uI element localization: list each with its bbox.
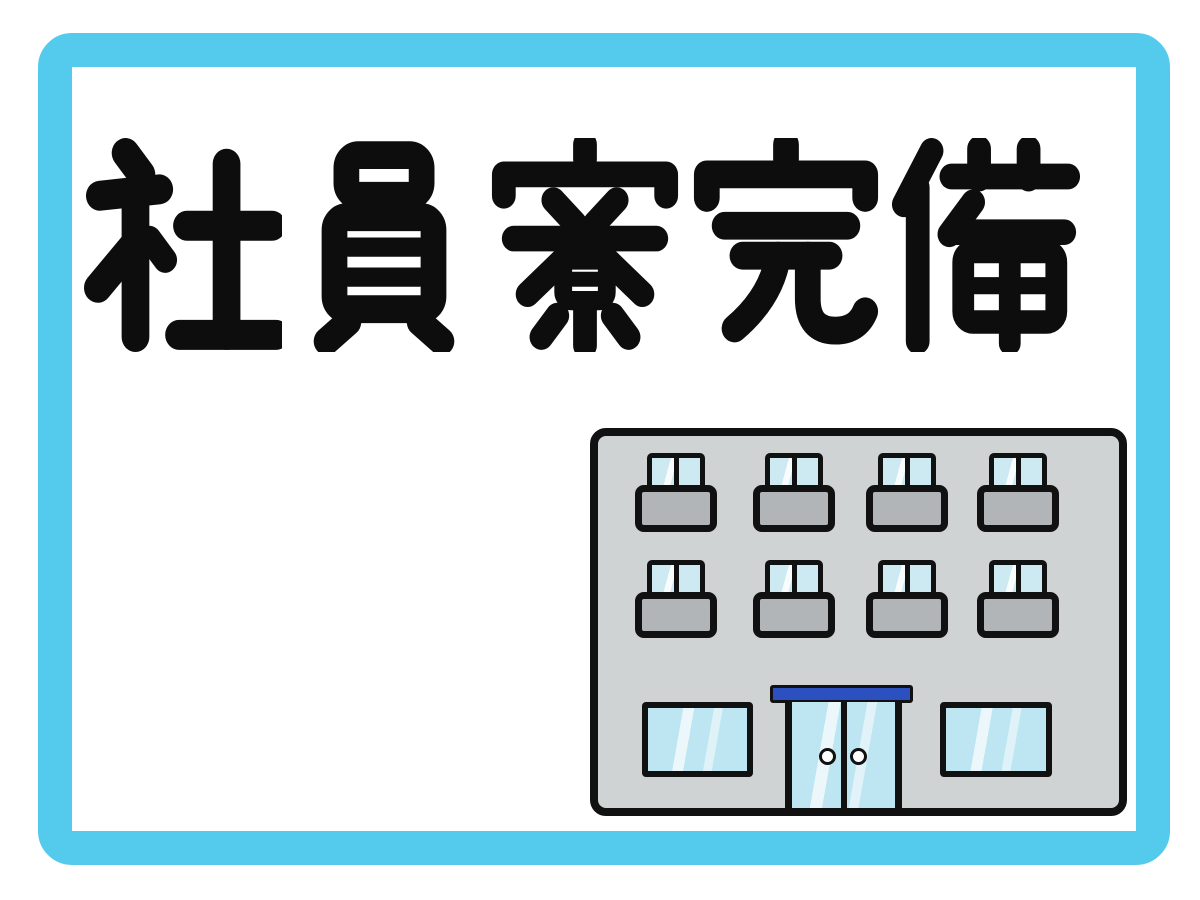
balcony-window-unit — [866, 453, 948, 533]
window-mullion — [792, 565, 797, 593]
balcony-window-unit — [753, 560, 835, 638]
door-handle-icon — [819, 748, 836, 765]
window-mullion — [905, 458, 910, 486]
balcony-window-unit — [977, 560, 1059, 638]
balcony-window-unit — [977, 453, 1059, 533]
door-handle-icon — [850, 748, 867, 765]
ground-window-icon — [940, 702, 1052, 777]
balcony-panel — [635, 592, 717, 638]
window-mullion — [792, 458, 797, 486]
window-mullion — [1016, 565, 1021, 593]
window-mullion — [1016, 458, 1021, 486]
window-mullion — [674, 565, 679, 593]
balcony-window-unit — [635, 560, 717, 638]
headline-char-bi — [888, 138, 1086, 352]
headline-char-sha — [84, 138, 282, 352]
ground-window-icon — [642, 702, 753, 777]
headline-char-ryo — [486, 138, 684, 352]
balcony-panel — [753, 485, 835, 532]
balcony-panel — [977, 592, 1059, 638]
window-mullion — [674, 458, 679, 486]
balcony-window-unit — [866, 560, 948, 638]
balcony-panel — [635, 485, 717, 532]
door-divider — [841, 702, 847, 808]
balcony-window-unit — [753, 453, 835, 533]
balcony-panel — [977, 485, 1059, 532]
headline: 社員寮完備 — [84, 138, 1088, 352]
headline-char-in — [285, 138, 483, 352]
building-illustration — [590, 428, 1127, 816]
balcony-panel — [866, 592, 948, 638]
balcony-panel — [866, 485, 948, 532]
entrance-awning — [770, 685, 913, 703]
balcony-window-unit — [635, 453, 717, 533]
balcony-panel — [753, 592, 835, 638]
entrance-door — [785, 702, 902, 808]
window-mullion — [905, 565, 910, 593]
headline-char-kan — [687, 138, 885, 352]
